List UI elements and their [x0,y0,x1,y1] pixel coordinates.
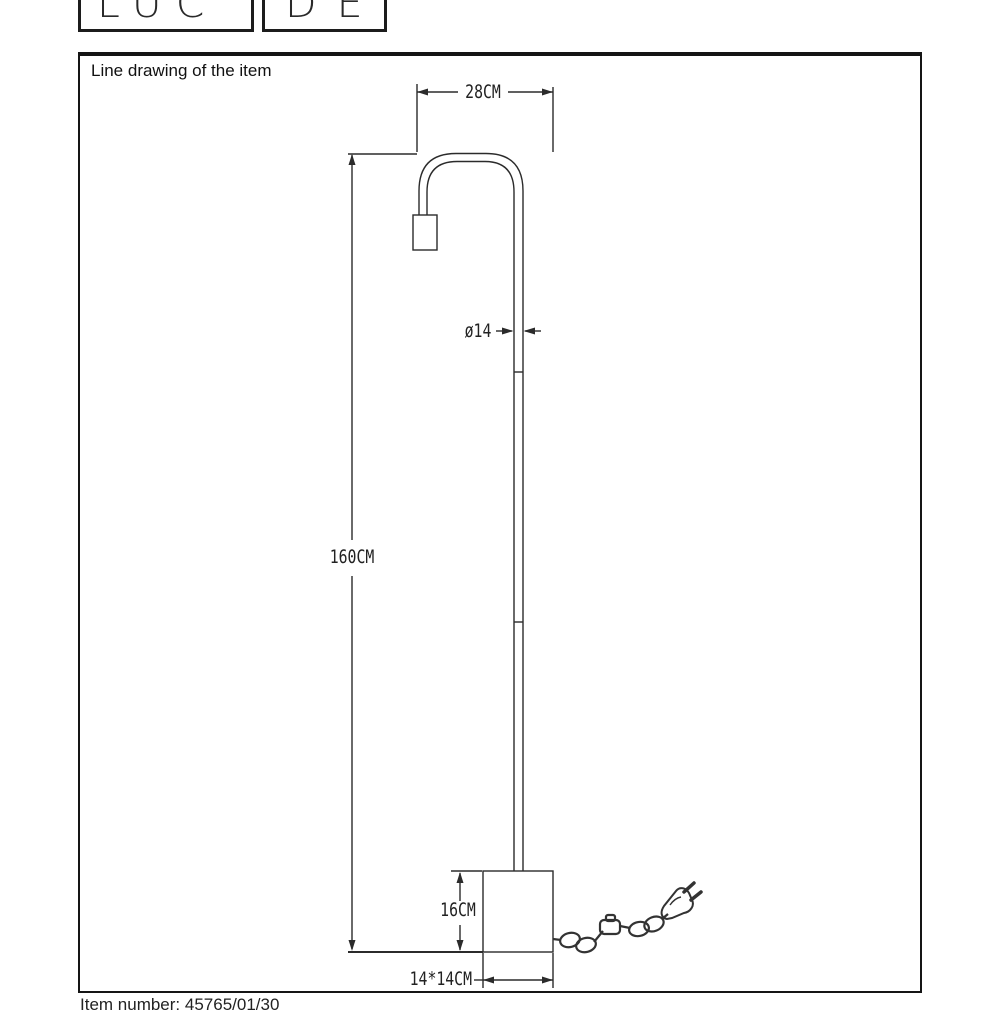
lamp-pole-joints [514,372,523,622]
label-pole-diameter: ø14 [465,320,492,342]
footer-partial-text: Item number: 45765/01/30 [80,995,580,1015]
line-drawing: 28CM ø14 160CM 16CM 14*14CM [0,0,1000,1001]
lamp-base [483,871,553,952]
dimension-pole-diameter [496,328,541,335]
label-total-height: 160CM [330,546,375,568]
dimension-base-footprint [474,953,553,988]
label-base-footprint: 14*14CM [410,968,472,990]
lamp-arm [419,154,523,872]
power-cord [553,914,668,954]
label-arm-width: 28CM [465,81,501,103]
dimension-labels: 28CM ø14 160CM 16CM 14*14CM [330,81,501,990]
lamp-socket [413,215,437,250]
label-base-height: 16CM [440,899,476,921]
